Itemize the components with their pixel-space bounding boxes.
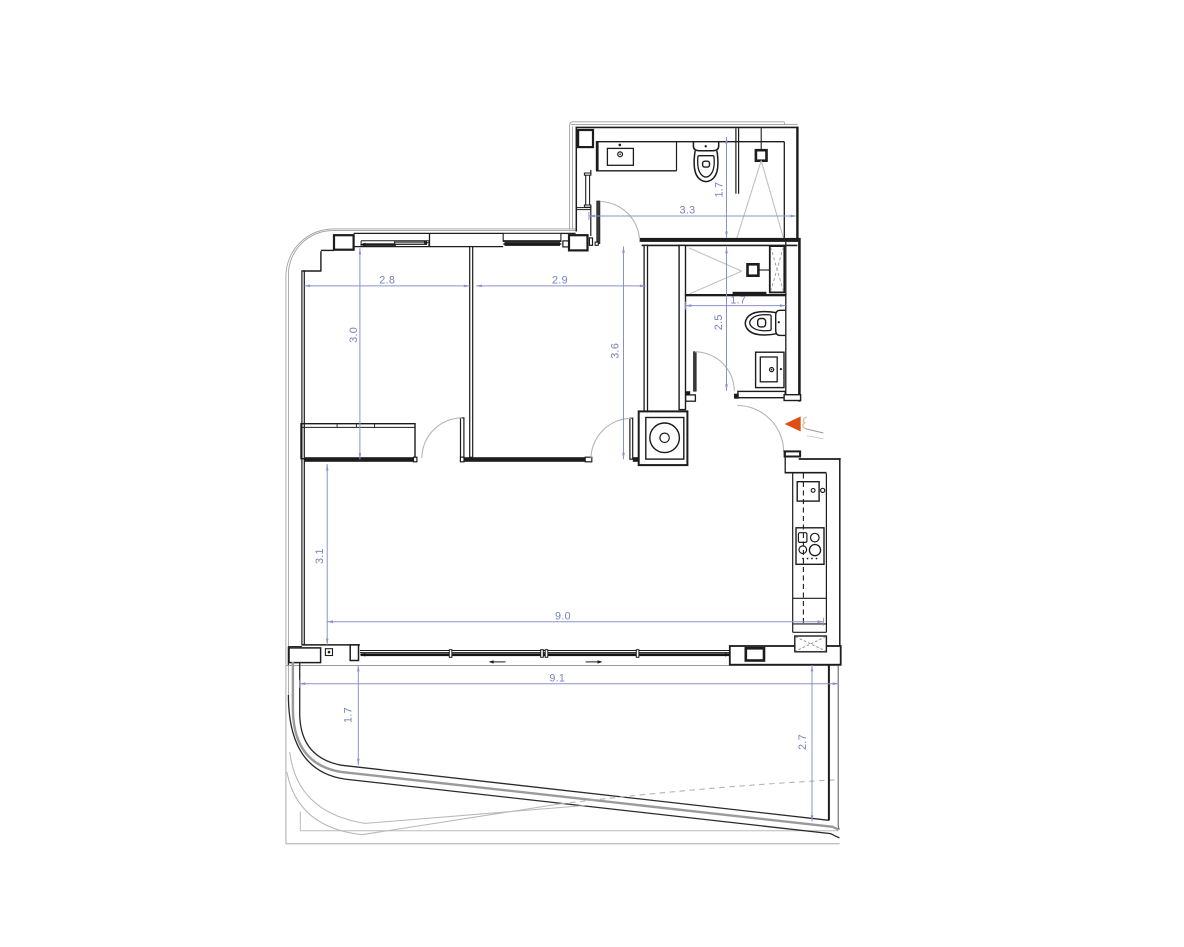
svg-text:1.7: 1.7 [730, 294, 746, 306]
svg-text:2.9: 2.9 [552, 275, 568, 287]
svg-text:2.8: 2.8 [379, 275, 395, 287]
svg-text:3.3: 3.3 [680, 205, 696, 217]
svg-text:9.1: 9.1 [549, 673, 565, 685]
svg-text:1.7: 1.7 [343, 707, 355, 723]
svg-text:2.7: 2.7 [797, 734, 809, 750]
svg-text:3.0: 3.0 [348, 327, 360, 343]
svg-text:3.1: 3.1 [314, 548, 326, 564]
svg-text:1.7: 1.7 [713, 182, 725, 198]
svg-text:9.0: 9.0 [555, 611, 571, 623]
svg-text:2.5: 2.5 [713, 314, 725, 330]
svg-text:3.6: 3.6 [610, 343, 622, 359]
